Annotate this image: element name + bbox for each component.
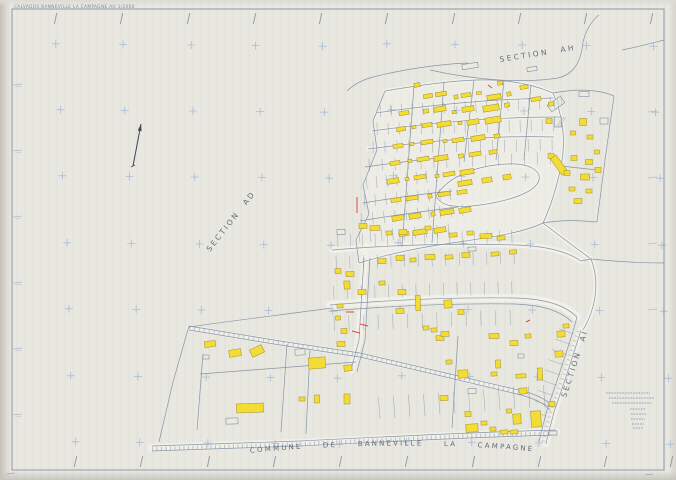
building bbox=[299, 397, 305, 401]
generated-map-graphics bbox=[7, 9, 674, 475]
building bbox=[425, 226, 431, 230]
building bbox=[228, 349, 241, 358]
building bbox=[423, 109, 429, 114]
outlined-building bbox=[468, 389, 476, 394]
handwritten-note bbox=[606, 393, 654, 428]
building bbox=[337, 304, 343, 308]
building bbox=[449, 233, 457, 237]
building bbox=[503, 174, 512, 180]
north-arrow bbox=[131, 124, 142, 167]
building bbox=[490, 427, 496, 431]
building bbox=[519, 388, 527, 394]
building bbox=[497, 81, 503, 86]
building bbox=[466, 424, 478, 433]
building bbox=[587, 135, 593, 139]
sheet-header-title: CALVADOS BANNEVILLE LA CAMPAGNE AU 1/200… bbox=[14, 4, 135, 9]
building bbox=[458, 370, 468, 379]
building bbox=[308, 357, 326, 369]
building bbox=[315, 395, 320, 403]
building bbox=[335, 316, 340, 320]
building bbox=[431, 328, 437, 332]
building bbox=[571, 131, 576, 135]
building bbox=[412, 125, 416, 129]
building bbox=[441, 331, 449, 336]
building bbox=[510, 430, 518, 434]
building bbox=[500, 430, 508, 434]
building bbox=[555, 351, 563, 357]
building bbox=[531, 411, 542, 428]
building bbox=[549, 401, 555, 406]
building bbox=[358, 289, 366, 294]
map-canvas: CALVADOS BANNEVILLE LA CAMPAGNE AU 1/200… bbox=[0, 0, 676, 480]
building bbox=[458, 121, 462, 125]
outlined-building bbox=[295, 349, 305, 356]
building bbox=[379, 281, 385, 285]
building bbox=[506, 409, 511, 413]
building bbox=[410, 258, 416, 262]
building bbox=[580, 119, 587, 126]
building bbox=[491, 252, 499, 256]
building bbox=[491, 372, 497, 376]
building bbox=[507, 92, 512, 97]
building bbox=[452, 110, 456, 114]
building bbox=[443, 139, 447, 143]
building bbox=[581, 174, 590, 180]
building bbox=[396, 255, 404, 260]
building bbox=[525, 334, 531, 338]
building bbox=[537, 368, 543, 380]
building bbox=[481, 421, 487, 425]
building bbox=[341, 328, 347, 333]
building bbox=[513, 414, 522, 424]
building bbox=[398, 289, 406, 294]
building bbox=[236, 403, 263, 413]
building bbox=[344, 394, 350, 404]
building bbox=[595, 168, 601, 173]
building bbox=[495, 360, 500, 368]
building bbox=[476, 91, 481, 95]
building bbox=[489, 333, 499, 339]
building bbox=[509, 250, 516, 254]
building bbox=[378, 258, 386, 263]
building bbox=[370, 225, 380, 231]
building bbox=[440, 395, 448, 400]
outlined-building bbox=[226, 418, 238, 424]
building bbox=[458, 309, 464, 314]
building bbox=[444, 300, 452, 308]
building bbox=[465, 411, 471, 416]
building bbox=[335, 268, 341, 273]
section-ad-label: SECTION AD bbox=[204, 189, 257, 253]
building bbox=[563, 324, 569, 328]
outlined-building bbox=[549, 431, 557, 435]
building bbox=[569, 187, 575, 191]
section-ah-label: SECTION AH bbox=[499, 43, 577, 64]
building bbox=[204, 340, 216, 347]
outlined-building bbox=[527, 66, 538, 72]
building bbox=[510, 340, 518, 345]
building bbox=[249, 345, 264, 358]
outlined-building bbox=[203, 355, 209, 359]
building bbox=[415, 295, 421, 310]
outlined-building bbox=[518, 354, 524, 358]
building bbox=[446, 360, 452, 364]
building bbox=[480, 233, 492, 239]
outlined-building bbox=[600, 118, 608, 124]
building bbox=[428, 194, 433, 199]
outlined-building bbox=[468, 247, 476, 251]
building bbox=[595, 150, 600, 154]
building bbox=[408, 159, 412, 163]
building bbox=[344, 365, 352, 372]
building bbox=[410, 142, 414, 146]
building bbox=[454, 95, 459, 100]
cadastral-sheet: CALVADOS BANNEVILLE LA CAMPAGNE AU 1/200… bbox=[0, 0, 676, 480]
building bbox=[423, 326, 429, 330]
building bbox=[337, 341, 345, 346]
building bbox=[346, 271, 354, 276]
building bbox=[548, 102, 554, 107]
building bbox=[359, 223, 367, 228]
building bbox=[386, 231, 392, 235]
building bbox=[546, 119, 552, 124]
building bbox=[504, 103, 510, 108]
building bbox=[462, 252, 470, 257]
building bbox=[557, 331, 565, 337]
building bbox=[494, 134, 501, 139]
building bbox=[574, 199, 582, 204]
building bbox=[399, 229, 407, 234]
building bbox=[458, 154, 464, 159]
building bbox=[571, 156, 577, 161]
outlined-building bbox=[579, 92, 589, 97]
building bbox=[405, 177, 409, 181]
building bbox=[425, 254, 435, 260]
building bbox=[414, 83, 421, 88]
building bbox=[445, 255, 453, 259]
building bbox=[497, 236, 505, 240]
building bbox=[431, 212, 436, 217]
building bbox=[396, 308, 404, 313]
building bbox=[586, 160, 593, 165]
outlined-building bbox=[337, 229, 345, 234]
building bbox=[435, 174, 439, 178]
building bbox=[467, 231, 473, 235]
building bbox=[516, 374, 526, 379]
building bbox=[586, 189, 592, 193]
building bbox=[344, 281, 350, 289]
building bbox=[564, 171, 570, 176]
